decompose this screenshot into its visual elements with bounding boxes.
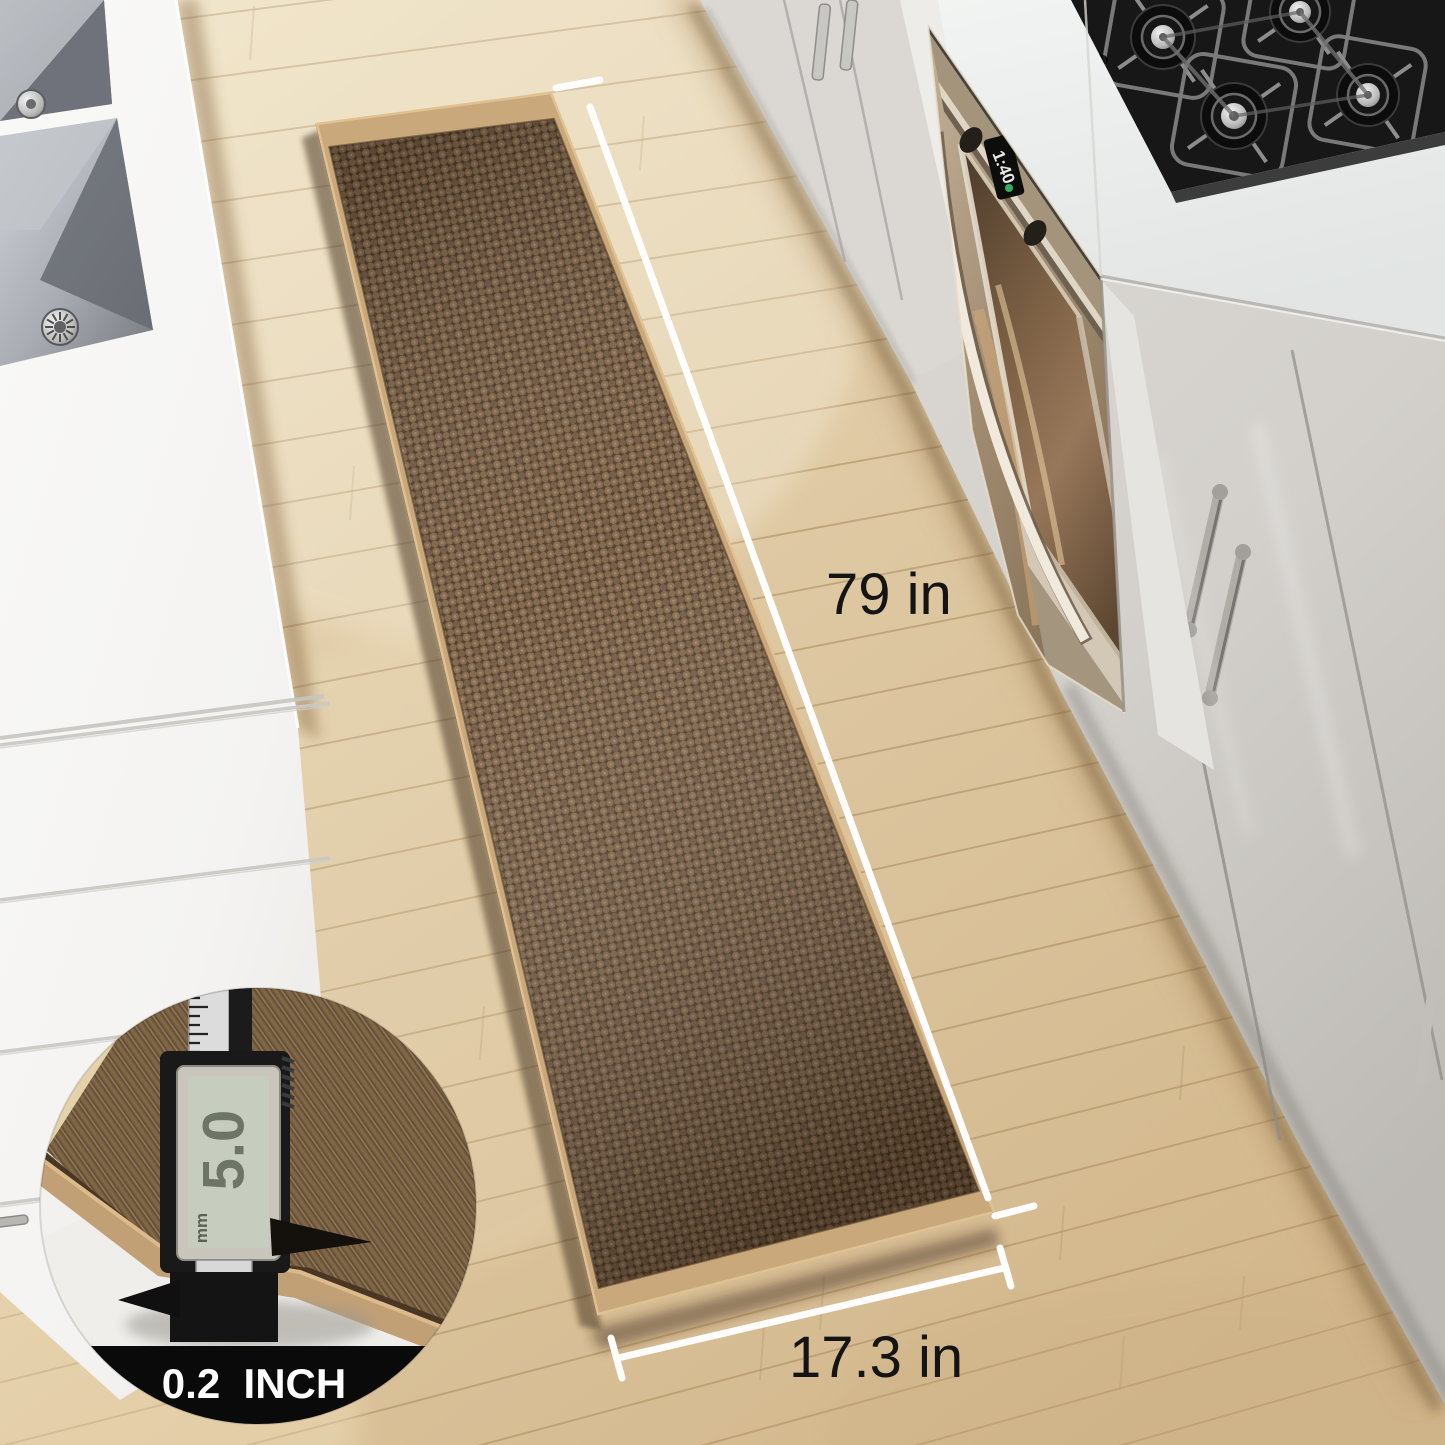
svg-text:mm: mm [192,1213,211,1243]
svg-text:0.2 INCH: 0.2 INCH [162,1360,346,1407]
svg-text:79 in: 79 in [826,562,952,627]
svg-text:17.3 in: 17.3 in [789,1325,963,1390]
svg-text:5.0: 5.0 [191,1110,256,1191]
